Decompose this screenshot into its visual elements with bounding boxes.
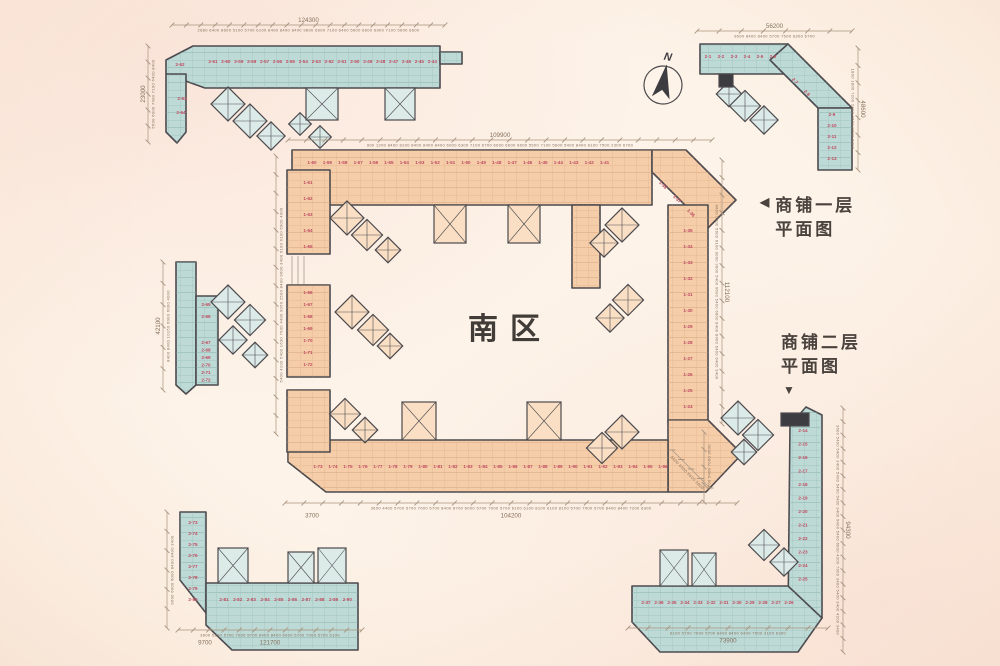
dimension-segments: 5600 6000 7400 7100 6400 8400 (151, 59, 156, 129)
unit-number: 1-53 (415, 160, 425, 165)
unit-number: 2-53 (312, 59, 322, 64)
stair-tower (719, 74, 733, 87)
unit-number: 2-17 (798, 469, 808, 474)
unit-number: 1-32 (683, 276, 693, 281)
unit-number: 1-67 (303, 302, 313, 307)
unit-number: 1-42 (585, 160, 595, 165)
unit-number: 2-77 (188, 564, 198, 569)
dimension-segments: 6100 5700 7000 5700 8400 8400 6400 7500 … (670, 631, 787, 636)
unit-number: 2-34 (680, 600, 690, 605)
unit-number: 2-32 (706, 600, 716, 605)
down-arrow-icon: ▼ (783, 382, 855, 399)
unit-number: 1-33 (683, 260, 693, 265)
dimension-total: 73900 (719, 638, 737, 645)
north-compass: N (641, 48, 688, 107)
north-strip-second-floor: 2-612-602-592-582-572-562-552-542-532-52… (140, 17, 462, 150)
dimension-line: 5600 6000 7400 7100 6400 840023000 (140, 44, 156, 145)
unit-number: 2-64 (176, 110, 186, 115)
unit-number: 1-73 (313, 464, 323, 469)
unit-number: 1-60 (307, 160, 317, 165)
unit-number: 1-34 (683, 244, 693, 249)
west-strip-second-floor: 2-672-682-692-702-712-722-652-668400 840… (155, 260, 268, 394)
dimension-line: 900 1200 8400 8100 8400 8400 8400 6000 6… (286, 132, 715, 148)
unit-number: 1-43 (569, 160, 579, 165)
unit-number: 2-2 (718, 54, 725, 59)
unit-number: 2-12 (827, 145, 837, 150)
unit-number: 2-56 (273, 59, 283, 64)
unit-number: 1-25 (683, 388, 693, 393)
unit-number: 2-78 (188, 575, 198, 580)
unit-number: 2-59 (234, 59, 244, 64)
unit-number: 1-85 (493, 464, 503, 469)
unit-number: 2-19 (798, 496, 808, 501)
dimension-line: 5400 4100 5400 1630 7900 4400 9050 2500 … (274, 154, 284, 437)
unit-number: 2-27 (771, 600, 781, 605)
unit-number: 2-57 (260, 59, 270, 64)
unit-number: 1-44 (554, 160, 564, 165)
unit-number: 2-84 (260, 597, 270, 602)
unit-number: 1-64 (303, 228, 313, 233)
unit-number: 1-35 (683, 228, 693, 233)
unit-number: 1-55 (384, 160, 394, 165)
unit-number: 1-62 (303, 196, 313, 201)
zone-title: 南区 (468, 304, 552, 348)
dimension-segments: 3600 4400 5700 5700 7000 5700 8400 8700 … (371, 506, 652, 511)
unit-number: 2-80 (188, 597, 198, 602)
legend-floor1: ◀ 商铺一层 平面图 (760, 194, 855, 242)
unit-number: 1-76 (358, 464, 368, 469)
unit-number: 2-13 (827, 156, 837, 161)
unit-number: 1-51 (446, 160, 456, 165)
unit-number: 2-88 (315, 597, 325, 602)
dimension-total: 48600 (859, 100, 866, 118)
unit-number: 2-3 (731, 54, 738, 59)
unit-number: 2-10 (827, 123, 837, 128)
unit-number: 1-86 (508, 464, 518, 469)
unit-number: 2-79 (188, 586, 198, 591)
dimension-segments: 1800 1800 7200 2400 9600 9600 6300 (850, 69, 855, 150)
unit-number: 1-95 (643, 464, 653, 469)
unit-number: 2-25 (798, 577, 808, 582)
northeast-wing-second-floor: 2-12-22-32-42-52-62-92-102-112-122-132-7… (695, 23, 866, 172)
unit-number: 2-37 (641, 600, 651, 605)
unit-number: 2-75 (188, 542, 198, 547)
left-arrow-icon: ◀ (760, 194, 769, 211)
unit-number: 2-51 (337, 59, 347, 64)
unit-number: 1-57 (354, 160, 364, 165)
unit-number: 1-59 (323, 160, 333, 165)
unit-number: 2-31 (719, 600, 729, 605)
unit-number: 1-30 (683, 308, 693, 313)
unit-number: 2-46 (402, 59, 412, 64)
unit-number: 1-79 (403, 464, 413, 469)
unit-number: 1-88 (538, 464, 548, 469)
unit-number: 2-68 (201, 348, 211, 353)
unit-number: 2-33 (693, 600, 703, 605)
unit-number: 1-81 (433, 464, 443, 469)
unit-number: 2-71 (201, 370, 211, 375)
unit-number: 2-60 (221, 59, 231, 64)
unit-number: 2-67 (201, 340, 211, 345)
dimension-segments: 3600 5200 5700 7000 5700 8400 8400 6000 … (200, 633, 340, 638)
unit-number: 2-23 (798, 550, 808, 555)
unit-number: 1-24 (683, 404, 693, 409)
unit-number: 2-5 (757, 54, 764, 59)
unit-number: 1-90 (568, 464, 578, 469)
unit-number: 1-84 (478, 464, 488, 469)
unit-number: 1-87 (523, 464, 533, 469)
legend-floor2-line1: 商铺二层 (781, 331, 861, 355)
unit-number: 1-52 (431, 160, 441, 165)
unit-number: 1-65 (303, 244, 313, 249)
unit-number: 2-76 (188, 553, 198, 558)
unit-number: 1-49 (477, 160, 487, 165)
unit-number: 2-24 (798, 563, 808, 568)
unit-number: 1-78 (388, 464, 398, 469)
unit-number: 2-49 (363, 59, 373, 64)
compass-n-label: N (663, 51, 674, 64)
southwest-wing-second-floor: 2-732-742-752-762-772-782-792-802-812-82… (165, 510, 365, 650)
unit-number: 2-72 (201, 378, 211, 383)
dimension-segments: 5400 4100 5400 1630 7900 4400 9050 2500 … (279, 207, 284, 382)
unit-number: 1-94 (628, 464, 638, 469)
unit-number: 1-63 (303, 212, 313, 217)
dimension-line: 3600 5400 5400 3400 5400 5400 5400 3400 … (835, 406, 851, 655)
unit-number: 1-71 (303, 350, 313, 355)
unit-number: 2-22 (798, 536, 808, 541)
unit-number: 1-41 (600, 160, 610, 165)
unit-number: 2-21 (798, 523, 808, 528)
dimension-segments: 9600 6000 6000 8400 8400 3400 (170, 535, 175, 605)
unit-number: 2-85 (274, 597, 284, 602)
unit-number: 2-36 (654, 600, 664, 605)
dimension-total: 56200 (766, 23, 784, 30)
unit-number: 1-56 (369, 160, 379, 165)
unit-number: 2-82 (233, 597, 243, 602)
unit-number: 1-47 (508, 160, 518, 165)
unit-number: 1-93 (613, 464, 623, 469)
unit-number: 1-83 (463, 464, 473, 469)
floor-plan-page: 2-612-602-592-582-572-562-552-542-532-52… (0, 0, 1000, 666)
unit-number: 1-61 (303, 180, 313, 185)
unit-number: 2-35 (667, 600, 677, 605)
unit-number: 2-52 (324, 59, 334, 64)
unit-number: 2-54 (299, 59, 309, 64)
dimension-total: 112100 (723, 282, 730, 303)
dimension-total: 94300 (844, 521, 851, 539)
unit-number: 2-6 (770, 54, 777, 59)
unit-number: 1-72 (303, 362, 313, 367)
unit-number: 2-66 (201, 314, 211, 319)
dimension-total: 121700 (260, 640, 281, 647)
unit-number: 1-48 (492, 160, 502, 165)
unit-number: 2-15 (798, 442, 808, 447)
southeast-wing-second-floor: 2-142-152-162-172-182-192-202-212-222-23… (626, 401, 851, 654)
dimension-segments: 6600 5400 5600 6100 9000 3600 5400 9600 … (714, 205, 719, 380)
unit-number: 2-48 (376, 59, 386, 64)
unit-number: 1-28 (683, 340, 693, 345)
unit-number: 2-30 (732, 600, 742, 605)
dimension-total: 42100 (155, 317, 162, 335)
unit-number: 2-87 (302, 597, 312, 602)
legend-floor2: 商铺二层 平面图 ▼ (781, 331, 861, 398)
unit-number: 2-26 (784, 600, 794, 605)
dimension-line: 8400 8400 10150 6000 6000 400042100 (155, 260, 171, 393)
dimension-segments: 5700 5400 7000 3600 (707, 444, 712, 490)
dimension-segments: 900 1200 8400 8100 8400 8400 8400 6000 6… (367, 143, 634, 148)
unit-number: 1-75 (343, 464, 353, 469)
unit-number: 1-80 (418, 464, 428, 469)
unit-number: 2-61 (208, 59, 218, 64)
unit-number: 2-83 (247, 597, 257, 602)
unit-number: 1-92 (598, 464, 608, 469)
unit-number: 1-96 (658, 464, 668, 469)
dimension-segments: 3600 5400 5400 3400 5400 5400 5400 3400 … (835, 425, 840, 636)
unit-number: 2-74 (188, 531, 198, 536)
dimension-total: 23000 (140, 85, 147, 103)
unit-number: 2-45 (415, 59, 425, 64)
unit-number: 2-65 (201, 302, 211, 307)
unit-number: 2-4 (744, 54, 751, 59)
stair-tower (781, 413, 809, 426)
unit-number: 1-68 (303, 314, 313, 319)
unit-number: 1-89 (553, 464, 563, 469)
unit-number: 2-20 (798, 509, 808, 514)
unit-number: 1-54 (400, 160, 410, 165)
unit-number: 2-86 (288, 597, 298, 602)
unit-number: 2-81 (219, 597, 229, 602)
unit-number: 2-9 (829, 112, 836, 117)
unit-number: 1-82 (448, 464, 458, 469)
unit-number: 1-66 (303, 290, 313, 295)
dimension-segments: 2680 6400 8600 5100 5700 6100 8400 8400 … (198, 28, 420, 33)
unit-number: 2-11 (828, 134, 837, 139)
unit-number: 2-63 (177, 96, 187, 101)
unit-number: 1-46 (523, 160, 533, 165)
dimension-line: 9600 6000 6000 8400 8400 3400 (165, 510, 175, 631)
legend-floor1-line1: 商铺一层 (775, 194, 855, 218)
unit-number: 2-44 (428, 59, 438, 64)
unit-number: 1-31 (683, 292, 693, 297)
legend-floor2-line2: 平面图 (781, 355, 861, 379)
unit-number: 1-91 (583, 464, 593, 469)
dimension-total: 3700 (305, 513, 319, 520)
unit-number: 2-1 (705, 54, 712, 59)
unit-number: 2-47 (389, 59, 399, 64)
dimension-line: 3600 4400 5700 5700 7000 5700 8400 8700 … (283, 501, 740, 520)
unit-number: 2-58 (247, 59, 257, 64)
dimension-line: 2680 6400 8600 5100 5700 6100 8400 8400 … (170, 17, 448, 33)
unit-number: 2-29 (745, 600, 755, 605)
unit-number: 1-29 (683, 324, 693, 329)
unit-number: 2-73 (188, 520, 198, 525)
unit-number: 2-14 (798, 428, 808, 433)
dimension-total: 104200 (501, 513, 522, 520)
dimension-segments: 9600 8400 8400 5700 7500 6300 6700 (734, 34, 815, 39)
unit-number: 2-18 (798, 482, 808, 487)
unit-number: 2-89 (329, 597, 339, 602)
dimension-total: 9700 (198, 640, 212, 647)
unit-number: 2-28 (758, 600, 768, 605)
unit-number: 1-26 (683, 372, 693, 377)
legend-floor1-line2: 平面图 (775, 218, 855, 242)
unit-number: 2-70 (201, 363, 211, 368)
unit-number: 1-27 (683, 356, 693, 361)
unit-number: 1-58 (338, 160, 348, 165)
unit-number: 2-50 (350, 59, 360, 64)
unit-number: 1-69 (303, 326, 313, 331)
unit-number: 2-16 (798, 455, 808, 460)
unit-number: 1-70 (303, 338, 313, 343)
dimension-line: 9600 8400 8400 5700 7500 6300 670056200 (695, 23, 855, 39)
dimension-segments: 8400 8400 10150 6000 6000 4000 (166, 290, 171, 362)
unit-number: 1-45 (538, 160, 548, 165)
dimension-total: 109900 (490, 132, 511, 139)
unit-number: 2-90 (343, 597, 353, 602)
unit-number: 1-50 (461, 160, 471, 165)
unit-number: 2-55 (286, 59, 296, 64)
unit-number: 2-69 (201, 355, 211, 360)
unit-number: 1-74 (328, 464, 338, 469)
dimension-total: 124300 (298, 17, 319, 24)
unit-number: 1-77 (373, 464, 383, 469)
unit-number: 2-62 (175, 62, 185, 67)
